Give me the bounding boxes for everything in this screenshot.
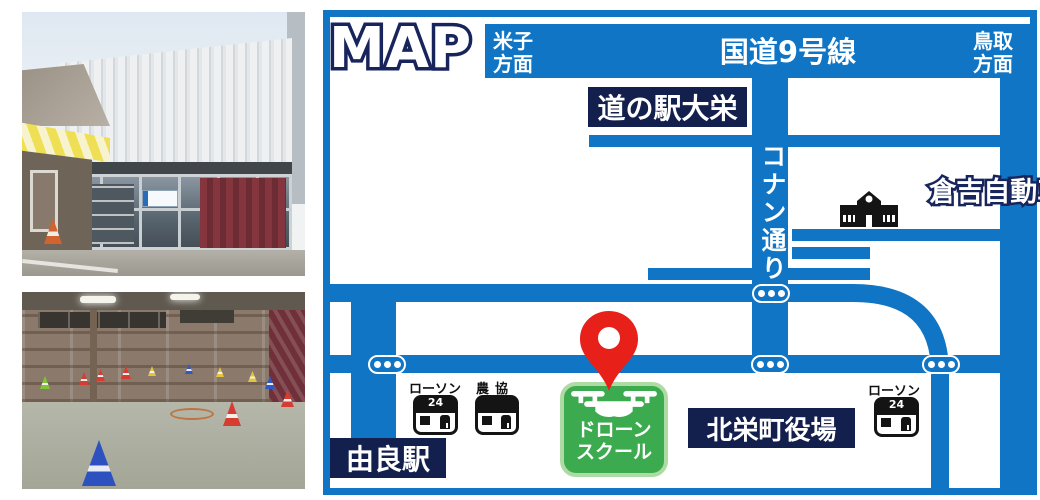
- photo1-window-sign: [142, 190, 178, 207]
- label-hokuei-town-hall: 北栄町役場: [688, 408, 855, 448]
- store-front: [413, 411, 458, 435]
- store-window: [420, 416, 430, 425]
- traffic-light-icon: [752, 284, 790, 303]
- road-minor-upper: [589, 135, 1003, 147]
- direction-yonago-line2: 方面: [493, 53, 533, 76]
- photo1-eave-shadow: [58, 162, 292, 174]
- lawson-24-badge: 24: [413, 395, 458, 411]
- store-door: [501, 415, 511, 429]
- photo2-ceiling-light: [80, 296, 116, 303]
- store-door: [901, 417, 911, 431]
- map-title-fill: MAP: [329, 18, 472, 80]
- driving-school-fill: 倉吉自動車学校: [929, 170, 1040, 209]
- drone-icon: [570, 391, 658, 419]
- road-minor-school-1: [792, 229, 1037, 241]
- store-front: [475, 411, 519, 435]
- label-michinoeki-daiei: 道の駅大栄: [588, 87, 747, 127]
- direction-tottori-line1: 鳥取: [953, 30, 1013, 53]
- photo-indoor-training-area: [22, 292, 305, 489]
- access-map-page: MAP MAP 米子 方面 国道9号線 鳥取 方面 道の駅大栄 コナン通り 倉吉…: [0, 0, 1040, 500]
- label-conan-street: コナン通り: [754, 143, 790, 283]
- direction-yonago-line1: 米子: [493, 30, 533, 53]
- direction-tottori: 鳥取 方面: [953, 30, 1013, 76]
- location-pin-icon: [576, 309, 642, 393]
- drone-school-line2: スクール: [576, 441, 652, 463]
- label-yura-station: 由良駅: [330, 438, 446, 478]
- traffic-light-icon: [922, 355, 960, 374]
- store-window: [881, 418, 891, 427]
- store-roof: [475, 395, 519, 411]
- traffic-light-icon: [751, 355, 789, 374]
- photo1-red-curtain: [200, 178, 286, 248]
- school-building-icon: [840, 189, 898, 227]
- store-window: [482, 416, 492, 425]
- road-minor-school-2: [792, 247, 870, 259]
- photo2-floor-marker: [170, 408, 214, 420]
- map-title: MAP MAP: [329, 18, 472, 80]
- photo2-red-curtain: [269, 310, 305, 404]
- photo2-window-strip: [180, 310, 234, 323]
- map-border-bottom: [323, 488, 1037, 495]
- map-border-left: [323, 10, 330, 495]
- drone-school-box: ドローン スクール: [560, 382, 668, 477]
- drone-school-line1: ドローン: [576, 419, 651, 441]
- route9-name: 国道9号線: [683, 35, 893, 69]
- photo-building-exterior: [22, 12, 305, 276]
- store-front: [874, 413, 919, 437]
- ja-store-icon: [475, 395, 519, 435]
- direction-tottori-line2: 方面: [953, 53, 1013, 76]
- photo2-wall-post: [90, 310, 97, 402]
- store-door: [440, 415, 450, 429]
- direction-yonago: 米子 方面: [493, 30, 533, 76]
- photo2-concrete-floor: [22, 402, 305, 489]
- access-map: MAP MAP 米子 方面 国道9号線 鳥取 方面 道の駅大栄 コナン通り 倉吉…: [323, 10, 1037, 495]
- photo2-ceiling: [22, 292, 305, 310]
- lawson-store-icon: 24: [413, 395, 458, 435]
- road-right-vertical: [1000, 24, 1037, 488]
- lawson-24-badge: 24: [874, 397, 919, 413]
- photo2-ceiling-light: [170, 294, 200, 300]
- lawson-store-icon: 24: [874, 397, 919, 437]
- traffic-light-icon: [368, 355, 406, 374]
- label-driving-school: 倉吉自動車学校 倉吉自動車学校: [929, 170, 1040, 209]
- photo2-window-strip: [38, 312, 166, 328]
